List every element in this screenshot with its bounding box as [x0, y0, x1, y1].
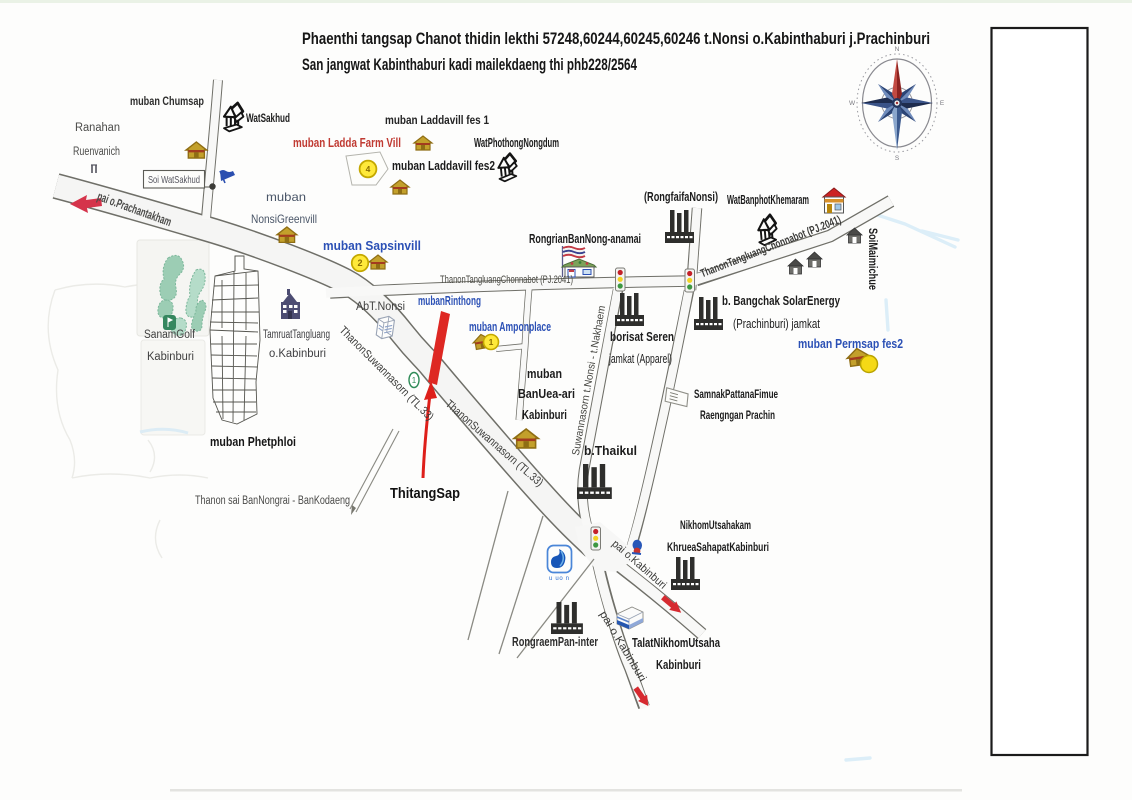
svg-text:Thanon sai BanNongrai - BanKod: Thanon sai BanNongrai - BanKodaeng: [195, 495, 350, 507]
svg-text:AbT.Nonsi: AbT.Nonsi: [356, 301, 405, 313]
svg-text:u uo n: u uo n: [549, 576, 569, 582]
svg-text:muban Sapsinvill: muban Sapsinvill: [323, 239, 421, 253]
svg-text:Soi WatSakhud: Soi WatSakhud: [148, 174, 200, 186]
svg-text:ThitangSap: ThitangSap: [390, 486, 460, 502]
svg-text:1: 1: [412, 376, 417, 385]
svg-text:(Prachinburi) jamkat: (Prachinburi) jamkat: [733, 317, 820, 331]
svg-text:muban Amponplace: muban Amponplace: [469, 320, 551, 334]
svg-text:KhrueaSahapatKabinburi: KhrueaSahapatKabinburi: [667, 540, 769, 554]
svg-text:RongrianBanNong-anamai: RongrianBanNong-anamai: [529, 232, 641, 246]
svg-text:S: S: [895, 155, 900, 162]
svg-text:NikhomUtsahakam: NikhomUtsahakam: [680, 518, 751, 532]
svg-text:Ranahan: Ranahan: [75, 122, 120, 134]
svg-text:Phaenthi tangsap Chanot thidin: Phaenthi tangsap Chanot thidin lekthi 57…: [302, 30, 930, 48]
svg-text:muban Phetphloi: muban Phetphloi: [210, 435, 296, 449]
svg-text:muban: muban: [527, 367, 562, 381]
svg-text:muban Laddavill fes2: muban Laddavill fes2: [392, 159, 495, 173]
svg-text:muban Laddavill fes 1: muban Laddavill fes 1: [385, 113, 489, 127]
svg-text:NonsiGreenvill: NonsiGreenvill: [251, 212, 317, 226]
svg-text:2: 2: [357, 258, 362, 268]
svg-text:o.Kabinburi: o.Kabinburi: [269, 348, 326, 360]
svg-text:jamkat (Apparel): jamkat (Apparel): [608, 352, 672, 366]
svg-text:WatBanphotKhemaram: WatBanphotKhemaram: [727, 193, 809, 207]
svg-text:ThanonTangluangChonnabot (PJ.2: ThanonTangluangChonnabot (PJ.2041): [440, 274, 573, 286]
svg-text:TalatNikhomUtsaha: TalatNikhomUtsaha: [632, 636, 721, 650]
svg-text:TamruatTangluang: TamruatTangluang: [263, 329, 330, 341]
svg-text:Kabinburi: Kabinburi: [147, 351, 194, 363]
svg-text:(RongfaifaNonsi): (RongfaifaNonsi): [644, 190, 718, 204]
svg-text:W: W: [849, 100, 856, 107]
svg-text:SoiMaimichue: SoiMaimichue: [866, 228, 880, 290]
svg-text:4: 4: [366, 164, 371, 174]
svg-text:muban Ladda Farm Vill: muban Ladda Farm Vill: [293, 136, 401, 150]
svg-text:E: E: [940, 100, 945, 107]
svg-text:RongraemPan-inter: RongraemPan-inter: [512, 635, 598, 649]
svg-text:b.Thaikul: b.Thaikul: [584, 444, 637, 458]
svg-text:Raengngan Prachin: Raengngan Prachin: [700, 408, 775, 422]
svg-text:muban: muban: [266, 190, 306, 204]
svg-text:muban Chumsap: muban Chumsap: [130, 94, 204, 108]
svg-text:Kabinburi: Kabinburi: [522, 408, 567, 422]
svg-text:Kabinburi: Kabinburi: [656, 658, 701, 672]
svg-text:San jangwat Kabinthaburi kadi: San jangwat Kabinthaburi kadi mailekdaen…: [302, 56, 638, 74]
svg-text:1: 1: [489, 337, 494, 347]
svg-text:Ruenvanich: Ruenvanich: [73, 146, 120, 158]
svg-text:SanamGolf: SanamGolf: [144, 329, 196, 341]
svg-text:borisat Seren: borisat Seren: [610, 330, 674, 344]
svg-text:BanUea-ari: BanUea-ari: [518, 387, 575, 401]
svg-text:SamnakPattanaFimue: SamnakPattanaFimue: [694, 387, 778, 401]
svg-text:WatSakhud: WatSakhud: [246, 111, 290, 125]
svg-text:b. Bangchak SolarEnergy: b. Bangchak SolarEnergy: [722, 294, 840, 308]
svg-text:WatPhothongNongdum: WatPhothongNongdum: [474, 136, 559, 150]
svg-text:muban Permsap fes2: muban Permsap fes2: [798, 337, 903, 351]
svg-text:mubanRinthong: mubanRinthong: [418, 294, 481, 308]
